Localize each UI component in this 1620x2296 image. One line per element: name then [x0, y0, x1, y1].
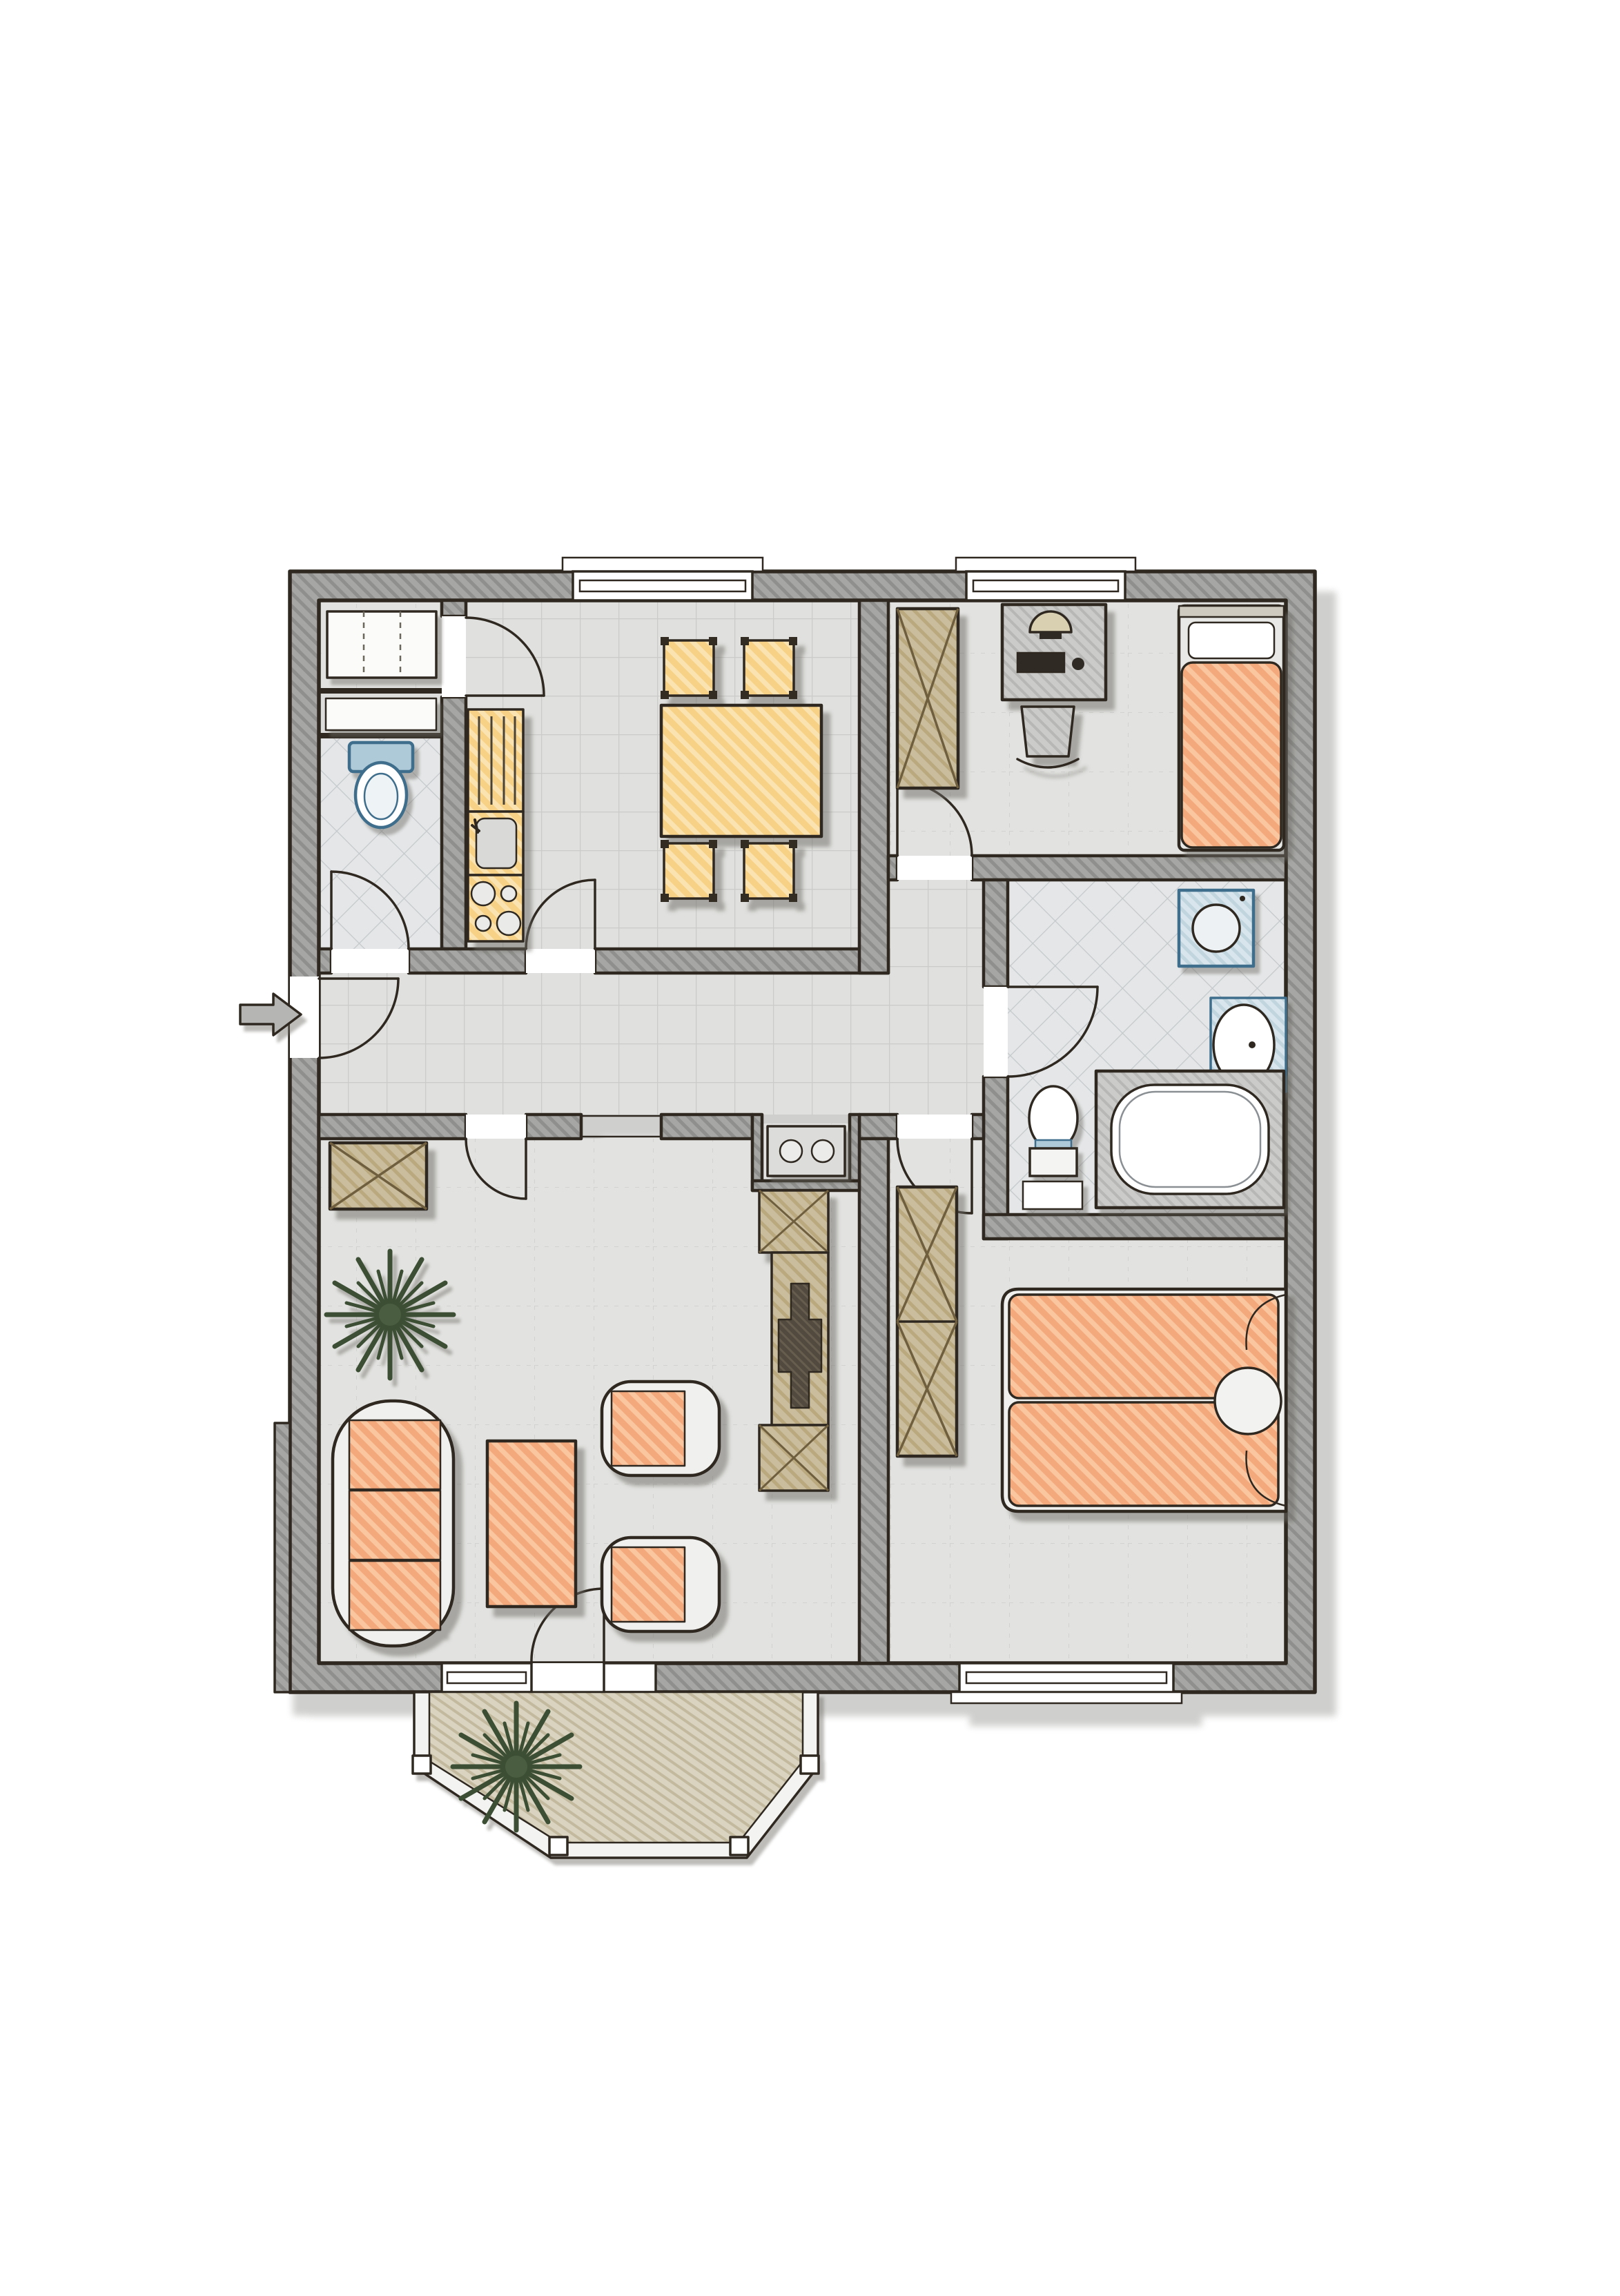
window-living — [442, 1663, 531, 1692]
open-passage-hall-living — [581, 1116, 661, 1137]
opening-storage — [442, 616, 466, 697]
stove-burner-4 — [497, 912, 520, 935]
window-bedroom1-sill — [956, 558, 1135, 571]
toilet-hinge — [1035, 1140, 1071, 1148]
stove-burner-3 — [476, 916, 491, 931]
wall-bedroom2-left — [859, 1139, 888, 1663]
kitchen-counter — [468, 709, 523, 941]
sofa-cushion — [349, 1420, 440, 1489]
sofa-cushion — [349, 1561, 440, 1630]
desk-group — [1002, 605, 1106, 700]
window-living-side — [604, 1663, 656, 1692]
bathtub-tub — [1111, 1085, 1269, 1194]
window-bedroom2-outer-sill — [951, 1692, 1182, 1703]
bed1-blanket — [1182, 663, 1281, 847]
dining-chair — [664, 640, 714, 696]
wall-hall-top-a — [319, 949, 331, 973]
storage-shelf-cabinet — [327, 611, 436, 678]
sofa-cushion — [349, 1491, 440, 1560]
wall-alcove-bottom — [752, 1181, 859, 1190]
wall-bedroom2-top-b — [972, 1115, 984, 1139]
opening-balcony-door — [531, 1663, 604, 1692]
wall-alcove-left — [752, 1115, 762, 1190]
wall-hall-top-b — [409, 949, 526, 973]
coffee-table — [487, 1441, 576, 1607]
toilet-cistern — [1030, 1148, 1077, 1176]
opening-living — [466, 1115, 526, 1139]
armchair-cushion — [612, 1547, 685, 1622]
wall-niche-top-line — [319, 688, 442, 694]
wall-bedroom1-bottom-b — [972, 856, 1286, 880]
wall-storage-kitchen-bottom — [442, 697, 466, 949]
armchair — [602, 1382, 719, 1475]
exterior-wall-step — [275, 1423, 290, 1692]
dining-table — [661, 705, 821, 836]
alcove-sideboard — [768, 1126, 845, 1176]
living-wardrobe-cabinet — [330, 1143, 427, 1209]
double-bed — [1002, 1289, 1286, 1511]
bedroom1-wardrobe — [897, 609, 958, 788]
niche-shelf — [326, 698, 436, 730]
bed2-round-pillow — [1215, 1368, 1281, 1434]
window-bedroom1 — [966, 571, 1125, 600]
hall-nook-floor — [888, 880, 984, 973]
kitchen-sink-basin — [476, 818, 516, 868]
single-bed — [1179, 606, 1284, 850]
floor-plan-drawing — [0, 0, 1620, 2296]
wall-bathroom-left-upper — [984, 880, 1008, 987]
keyboard — [1017, 653, 1064, 672]
stove-burner-2 — [501, 886, 516, 901]
wall-bathroom-bottom — [984, 1215, 1286, 1239]
cabinet-x-bottom — [759, 1425, 828, 1491]
toilet-niche-shelf — [1023, 1181, 1082, 1209]
bedroom2-wardrobe — [897, 1187, 957, 1456]
floor-plan-page — [0, 0, 1620, 2296]
balcony — [413, 1692, 819, 1858]
dining-chair — [744, 640, 794, 696]
sofa-3-seater — [333, 1401, 453, 1646]
opening-bedroom2 — [897, 1115, 972, 1139]
wall-storage-kitchen-top — [442, 600, 466, 616]
wall-alcove-right — [850, 1115, 859, 1181]
wc-toilet-bowl-inner — [364, 774, 398, 819]
bathroom-toilet — [1023, 1086, 1082, 1209]
dining-chair — [664, 843, 714, 899]
bed1-pillow — [1189, 622, 1274, 658]
opening-bathroom — [984, 987, 1008, 1077]
opening-wc — [331, 949, 409, 973]
wall-bedroom2-top-a — [859, 1115, 897, 1139]
hallway-floor — [319, 973, 984, 1115]
armchair — [602, 1538, 719, 1631]
dining-chair — [744, 843, 794, 899]
wall-niche-bottom-line — [319, 733, 442, 738]
storage-room-furniture — [326, 611, 436, 730]
wall-hall-top-c — [595, 949, 888, 973]
bathtub — [1096, 1071, 1284, 1208]
mouse — [1072, 658, 1084, 670]
armchair-cushion — [612, 1391, 685, 1466]
window-kitchen — [573, 571, 752, 600]
opening-bedroom1 — [897, 856, 972, 880]
cabinet-x-top — [759, 1190, 828, 1253]
wall-hall-bottom-a — [319, 1115, 466, 1139]
stove-burner-1 — [471, 882, 495, 905]
wall-kitchen-bedroom1 — [859, 600, 888, 973]
wall-hall-bottom-c — [661, 1115, 752, 1139]
wall-bedroom1-bottom-a — [888, 856, 897, 880]
bed1-headboard — [1179, 606, 1284, 617]
monitor-base — [1040, 632, 1062, 639]
opening-kitchen — [526, 949, 595, 973]
window-kitchen-sill — [563, 558, 763, 571]
wall-hall-bottom-b — [526, 1115, 581, 1139]
window-bedroom2 — [959, 1663, 1173, 1692]
washing-machine — [1179, 890, 1253, 966]
